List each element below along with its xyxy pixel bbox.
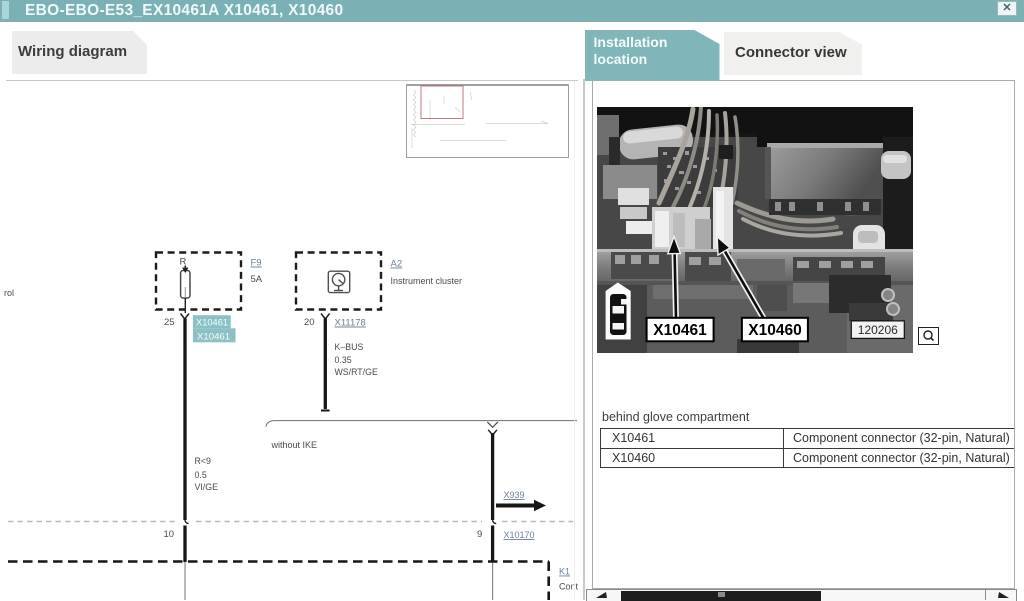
- svg-text:R<9: R<9: [195, 456, 211, 466]
- svg-text:K1: K1: [559, 567, 570, 577]
- svg-text:F9: F9: [251, 258, 262, 269]
- svg-text:WS/RT/GE: WS/RT/GE: [335, 367, 378, 377]
- svg-text:X10461: X10461: [653, 322, 707, 339]
- svg-text:X10170: X10170: [504, 530, 535, 540]
- svg-text:25: 25: [164, 317, 175, 328]
- svg-text:Cont: Cont: [559, 582, 578, 592]
- svg-text:X10461: X10461: [197, 331, 230, 342]
- svg-text:5A: 5A: [251, 274, 263, 285]
- svg-text:0.35: 0.35: [335, 355, 352, 365]
- svg-text:120206: 120206: [858, 323, 898, 337]
- svg-text:rol: rol: [4, 288, 14, 298]
- svg-text:X10461: X10461: [196, 317, 228, 327]
- svg-text:20: 20: [304, 317, 315, 328]
- svg-text:VI/GE: VI/GE: [195, 482, 219, 492]
- svg-text:10: 10: [164, 529, 175, 540]
- svg-text:9: 9: [477, 529, 482, 540]
- svg-text:X11178: X11178: [335, 318, 366, 329]
- svg-text:A2: A2: [391, 259, 403, 270]
- svg-text:X939: X939: [504, 490, 525, 500]
- svg-text:X10460: X10460: [748, 322, 801, 339]
- svg-text:without IKE: without IKE: [271, 440, 318, 450]
- svg-text:K–BUS: K–BUS: [335, 342, 364, 352]
- svg-text:0.5: 0.5: [195, 470, 207, 480]
- svg-text:Instrument cluster: Instrument cluster: [391, 276, 463, 286]
